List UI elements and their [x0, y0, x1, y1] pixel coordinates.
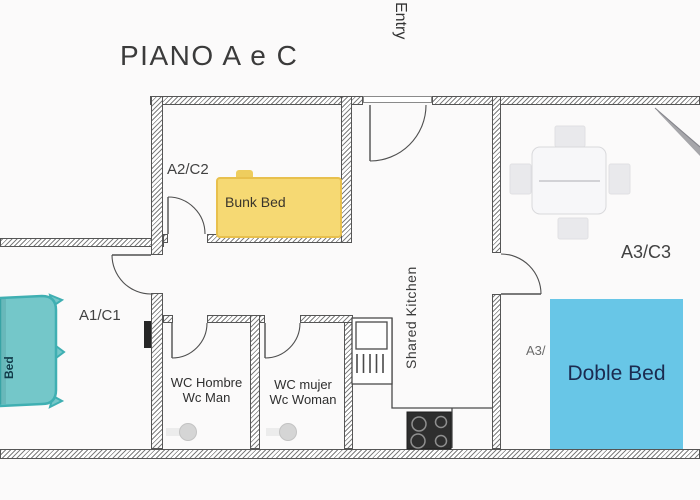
double-bed-label: Doble Bed [567, 362, 665, 386]
wc-men-label-line2: Wc Man [164, 390, 249, 405]
bunk-bed: Bunk Bed [216, 177, 342, 238]
room-label-a3-partial: A3/ [526, 343, 546, 358]
single-bed [0, 295, 64, 407]
room-label-a3c3: A3/C3 [621, 242, 671, 263]
single-bed-label: Bed [2, 356, 16, 379]
room-label-a2c2: A2/C2 [167, 161, 209, 178]
sink-basin [356, 322, 387, 349]
wc-women-label: WC mujer Wc Woman [261, 377, 345, 408]
wc-women-door [265, 323, 300, 358]
chair-right [609, 164, 630, 194]
wc-men-label-line1: WC Hombre [164, 375, 249, 390]
entry-door [370, 105, 426, 161]
chair-top [555, 126, 585, 147]
a3c3-door [501, 254, 541, 294]
dining-set [510, 126, 630, 239]
a2c2-door [168, 197, 205, 234]
double-bed: Doble Bed [550, 299, 683, 449]
chair-left [510, 164, 531, 194]
bunk-bed-label: Bunk Bed [225, 194, 286, 210]
wc-men-label: WC Hombre Wc Man [164, 375, 249, 406]
a1c1-door [112, 255, 151, 294]
floor-plan: PIANO A e C Entry Shared Kitchen [0, 0, 700, 500]
toilet-women [266, 424, 297, 441]
wc-men-door [172, 323, 207, 358]
chair-bottom [558, 218, 588, 239]
room-label-a1c1: A1/C1 [79, 307, 121, 324]
wc-women-label-line2: Wc Woman [261, 392, 345, 407]
wc-women-label-line1: WC mujer [261, 377, 345, 392]
pencil-mark [655, 108, 700, 156]
toilet-men [166, 424, 197, 441]
stove [407, 412, 451, 449]
